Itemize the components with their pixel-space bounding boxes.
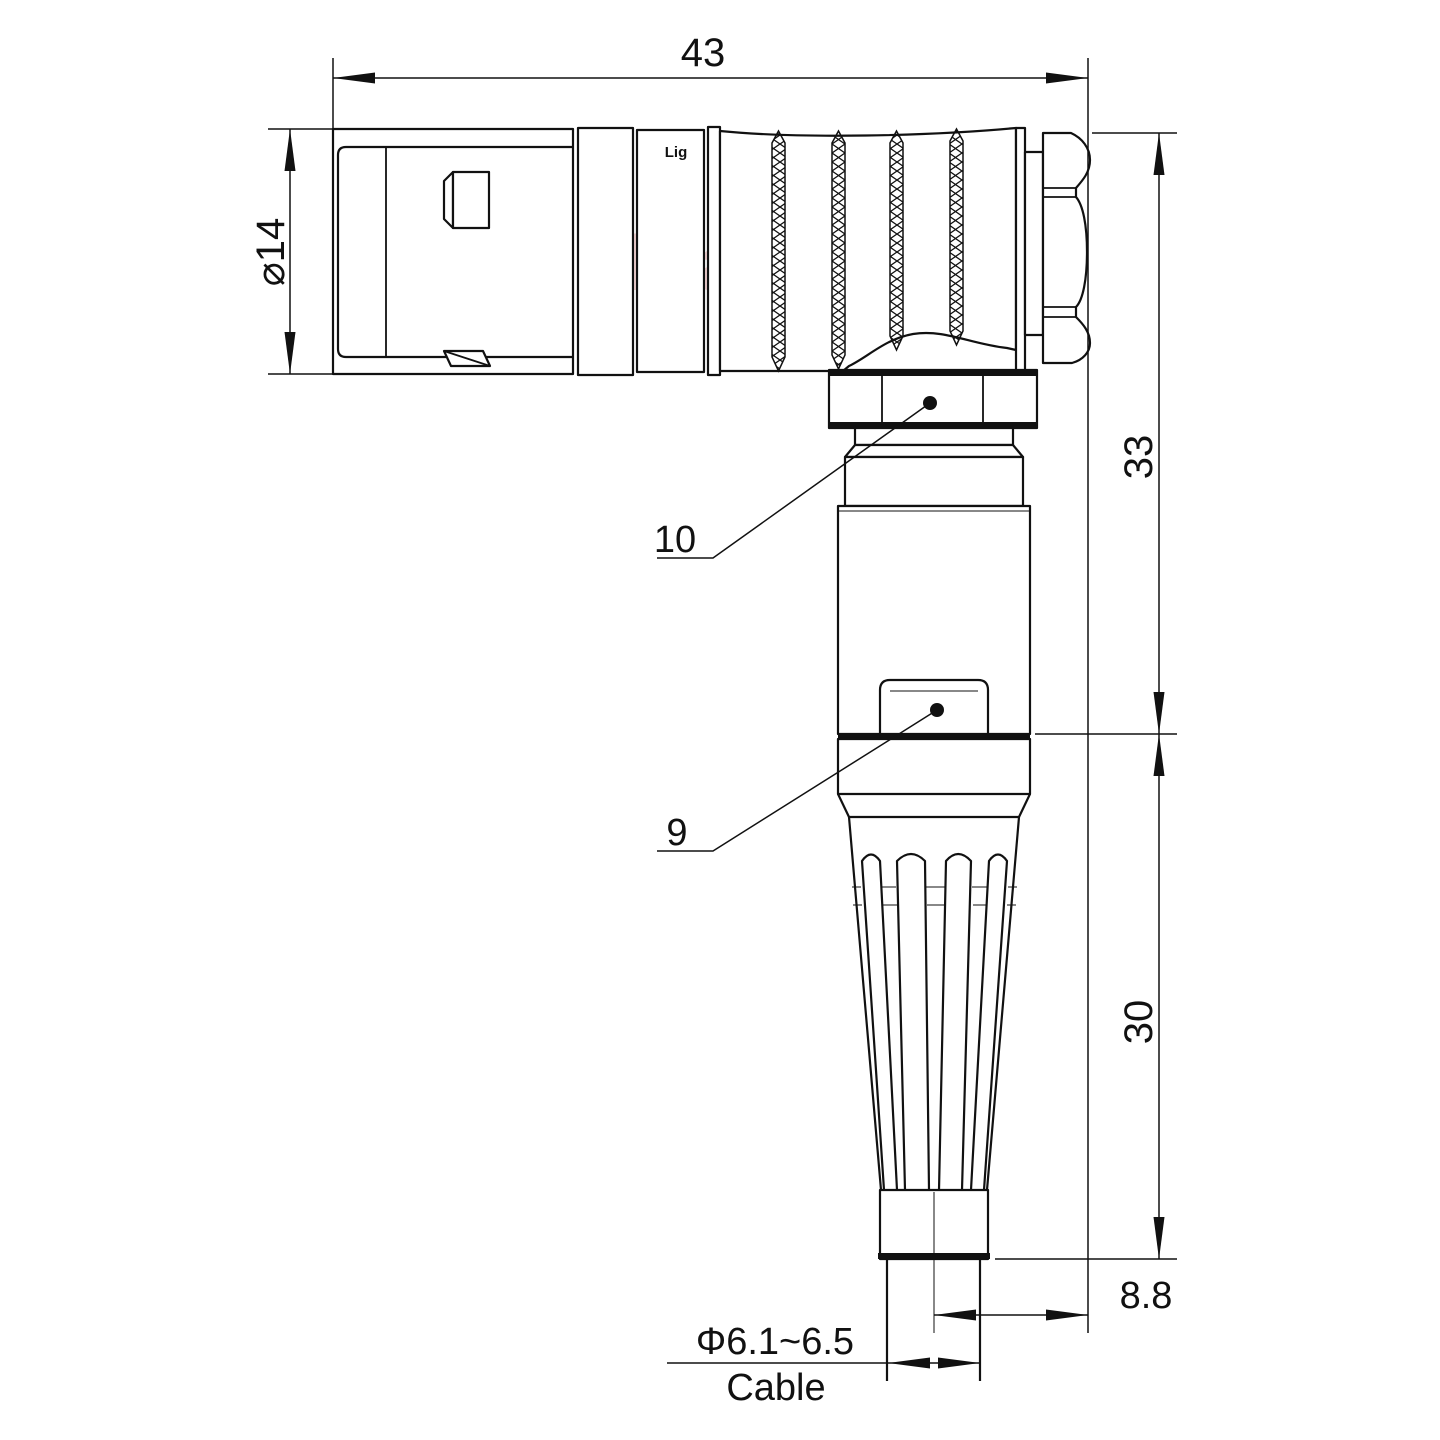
knurl-band-1 xyxy=(772,131,785,371)
dim-height-lower: 30 xyxy=(1117,1000,1161,1045)
arrowhead-left-offset xyxy=(934,1310,976,1321)
neck-flare xyxy=(845,445,1023,457)
latch-tab xyxy=(453,172,489,228)
arrowhead-right xyxy=(1046,73,1088,84)
plug-housing xyxy=(333,129,573,374)
connector-drawing-canvas: Lightany Lig xyxy=(0,0,1440,1440)
main-barrel xyxy=(838,506,1030,734)
connector-side-view: Lig xyxy=(333,127,1090,375)
upper-barrel xyxy=(845,457,1023,506)
strain-relief-webs xyxy=(852,887,1017,905)
callout-coupling-nut: 10 xyxy=(654,519,696,561)
arrowhead-up-33 xyxy=(1154,133,1165,175)
neck-ring xyxy=(855,428,1013,445)
latch-side-face xyxy=(444,172,453,228)
strain-relief-cone xyxy=(849,817,1019,1190)
arrowhead-down-30 xyxy=(1154,1217,1165,1259)
dim-body-diameter: ⌀14 xyxy=(249,218,293,287)
knurl-band-2 xyxy=(832,131,845,369)
coupling-nut xyxy=(1043,133,1090,363)
knurl-band-4 xyxy=(950,129,963,345)
spacer-washer xyxy=(1025,152,1043,335)
arrowhead-down-33 xyxy=(1154,692,1165,734)
lower-barrel xyxy=(838,739,1030,794)
arrowhead-left xyxy=(333,73,375,84)
arrowhead-right-offset xyxy=(1046,1310,1088,1321)
dim-height-upper: 33 xyxy=(1117,435,1161,480)
knurled-grip-body xyxy=(720,128,1016,371)
callout-cable-clamp: 9 xyxy=(666,812,687,854)
arrowhead-up-30 xyxy=(1154,734,1165,776)
boot-end-ring xyxy=(1016,128,1025,373)
leader-dot-9 xyxy=(930,703,944,717)
arrowhead-cable-right xyxy=(938,1358,980,1369)
cable-label: Cable xyxy=(726,1367,825,1409)
arrowhead-up xyxy=(285,129,296,171)
mid-sleeve xyxy=(637,130,704,372)
dim-cable-offset: 8.8 xyxy=(1120,1275,1173,1317)
collar-ring xyxy=(578,128,633,375)
strain-relief-rib-2 xyxy=(897,854,929,1190)
arrowhead-down xyxy=(285,332,296,374)
technical-drawing: Lightany Lig xyxy=(0,0,1440,1440)
boot-shoulder xyxy=(838,794,1030,817)
connector-down-leg xyxy=(829,370,1037,1381)
dim-cable-diameter: Φ6.1~6.5 xyxy=(696,1321,854,1363)
arrowhead-cable-left xyxy=(888,1358,930,1369)
strain-relief-rib-3 xyxy=(939,854,971,1190)
narrow-ring xyxy=(708,127,720,375)
knurl-band-3 xyxy=(890,131,903,350)
part-marking-text: Lig xyxy=(665,144,688,161)
dim-overall-length: 43 xyxy=(681,31,726,75)
leader-dot-10 xyxy=(923,396,937,410)
